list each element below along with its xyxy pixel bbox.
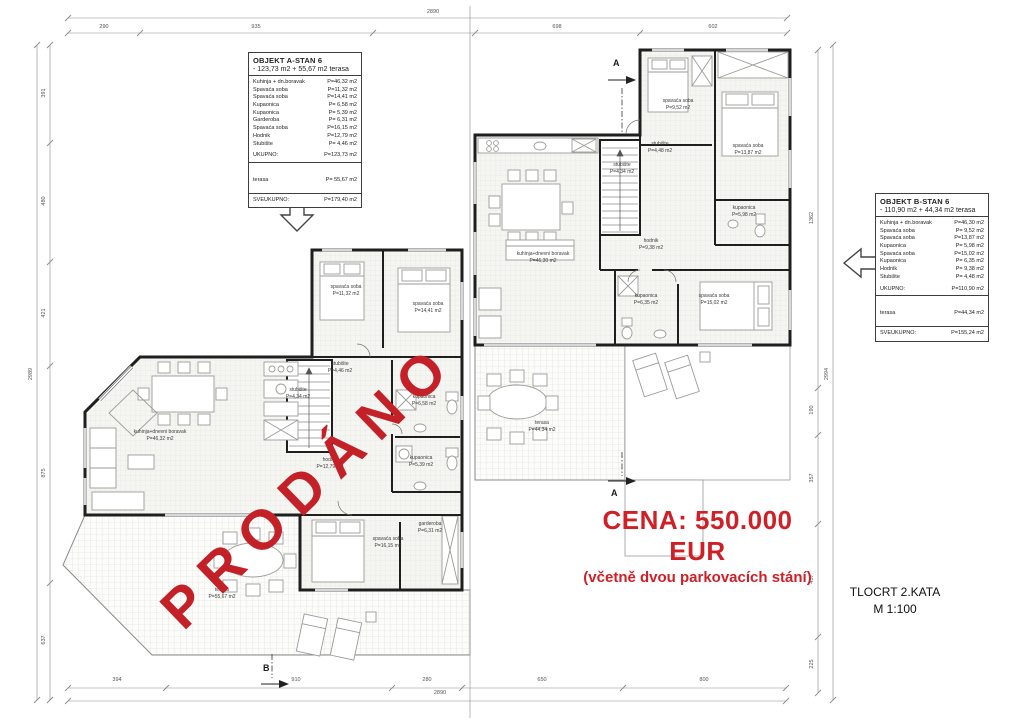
room-row: StubišteP= 4,48 m2 [880, 274, 984, 282]
room-row: KupaonicaP= 6,35 m2 [880, 258, 984, 266]
dimension-label: 935 [236, 24, 276, 30]
unit-b-subtitle: - 110,90 m2 + 44,34 m2 terasa [880, 207, 984, 214]
price-note: (včetně dvou parkovacích stání) [575, 569, 820, 586]
room-row: Spavaća sobaP=15,02 m2 [880, 251, 984, 259]
room-row: HodnikP=12,79 m2 [253, 133, 357, 141]
terrace-row: terasaP= 55,67 m2 [249, 163, 361, 193]
dimension-label: 290 [84, 24, 124, 30]
dimension-label: 650 [522, 677, 562, 683]
dimension-label: 480 [41, 181, 47, 221]
total-row: UKUPNO:P=110,90 m2 [880, 286, 984, 294]
room-label: stubišteP=4,34 m2 [256, 387, 340, 401]
unit-b-room-list: Kuhinja + dn.boravakP=46,30 m2 Spavaća s… [876, 217, 988, 296]
dimension-label: 190 [809, 390, 815, 430]
room-label: terasaP=44,34 m2 [500, 420, 584, 434]
room-label: stubišteP=4,46 m2 [298, 361, 382, 375]
dimension-label: 2989 [28, 354, 34, 394]
price-block: CENA: 550.000 EUR (včetně dvou parkovací… [575, 505, 820, 586]
room-row: StubišteP= 4,46 m2 [253, 141, 357, 149]
drawing-scale: M 1:100 [820, 601, 970, 618]
dimension-label: 910 [276, 677, 316, 683]
dimension-label: 637 [41, 620, 47, 660]
unit-b-info-box: OBJEKT B-STAN 6 - 110,90 m2 + 44,34 m2 t… [875, 193, 989, 342]
room-label: kupaonicaP=5,98 m2 [702, 205, 786, 219]
room-label: kuhinja+dnevni boravakP=46,30 m2 [501, 251, 585, 265]
dimension-label: 357 [809, 458, 815, 498]
terrace-row: terasaP=44,34 m2 [876, 296, 988, 326]
unit-b-header: OBJEKT B-STAN 6 - 110,90 m2 + 44,34 m2 t… [876, 194, 988, 217]
room-label: garderobaP=6,31 m2 [388, 521, 472, 535]
drawing-title: TLOCRT 2.KATA [820, 584, 970, 601]
room-label: kuhinja+dnevni boravakP=46,32 m2 [118, 429, 202, 443]
room-label: kupaonicaP=5,39 m2 [379, 455, 463, 469]
room-row: HodnikP= 9,38 m2 [880, 266, 984, 274]
total-row: UKUPNO:P=123,73 m2 [253, 152, 357, 160]
left-arrow-icon [844, 249, 878, 277]
dimension-label: 698 [537, 24, 577, 30]
room-row: GarderobaP= 6,31 m2 [253, 117, 357, 125]
room-row: KupaonicaP= 5,98 m2 [880, 243, 984, 251]
dimension-label: 280 [407, 677, 447, 683]
room-label: stubišteP=4,34 m2 [580, 162, 664, 176]
unit-a-room-list: Kuhinja + dn.boravakP=46,32 m2 Spavaća s… [249, 76, 361, 163]
room-row: KupaonicaP= 6,58 m2 [253, 102, 357, 110]
dimension-label: 875 [41, 453, 47, 493]
dimension-label: 391 [41, 73, 47, 113]
room-row: Spavaća sobaP=14,41 m2 [253, 94, 357, 102]
room-label: hodnikP=9,38 m2 [609, 238, 693, 252]
unit-a-title: OBJEKT A-STAN 6 [253, 56, 357, 65]
room-row: Spavaća sobaP=16,15 m2 [253, 125, 357, 133]
unit-a-info-box: OBJEKT A-STAN 6 - 123,73 m2 + 55,67 m2 t… [248, 52, 362, 208]
room-row: Spavaća sobaP=11,32 m2 [253, 87, 357, 95]
grand-total-row: SVEUKUPNO:P=155,24 m2 [876, 326, 988, 341]
section-marker-a: A [613, 58, 620, 68]
drawing-title-block: TLOCRT 2.KATA M 1:100 [820, 584, 970, 619]
grand-total-row: SVEUKUPNO:P=179,40 m2 [249, 193, 361, 208]
dimension-label: 1362 [809, 198, 815, 238]
dimension-label: 602 [693, 24, 733, 30]
room-row: Spavaća sobaP=13,87 m2 [880, 235, 984, 243]
room-label: spavaća sobaP=13,87 m2 [706, 143, 790, 157]
dimension-label: 800 [684, 677, 724, 683]
dimension-label: 421 [41, 293, 47, 333]
room-row: Kuhinja + dn.boravakP=46,32 m2 [253, 79, 357, 87]
unit-a-header: OBJEKT A-STAN 6 - 123,73 m2 + 55,67 m2 t… [249, 53, 361, 76]
price-amount: CENA: 550.000 EUR [575, 505, 820, 567]
dimension-label: 225 [809, 644, 815, 684]
room-label: spavaća sobaP=16,15 m2 [346, 536, 430, 550]
dimension-label: 2890 [420, 690, 460, 696]
section-marker-a: A [611, 488, 618, 498]
floor-plan-page: spavaća sobaP=11,32 m2 spavaća sobaP=14,… [0, 0, 1024, 724]
unit-b-title: OBJEKT B-STAN 6 [880, 197, 984, 206]
room-label: spavaća sobaP=11,32 m2 [304, 284, 388, 298]
dimension-label: 2994 [824, 354, 830, 394]
dimension-label: 2890 [413, 9, 453, 15]
room-row: Spavaća sobaP= 9,52 m2 [880, 228, 984, 236]
room-label: spavaća sobaP=15,02 m2 [672, 293, 756, 307]
room-label: stubišteP=4,48 m2 [618, 141, 702, 155]
room-label: spavaća sobaP=9,52 m2 [636, 98, 720, 112]
section-marker-b: B [263, 663, 270, 673]
room-row: KupaonicaP= 5,39 m2 [253, 110, 357, 118]
room-row: Kuhinja + dn.boravakP=46,30 m2 [880, 220, 984, 228]
dimension-label: 394 [97, 677, 137, 683]
unit-a-subtitle: - 123,73 m2 + 55,67 m2 terasa [253, 66, 357, 73]
